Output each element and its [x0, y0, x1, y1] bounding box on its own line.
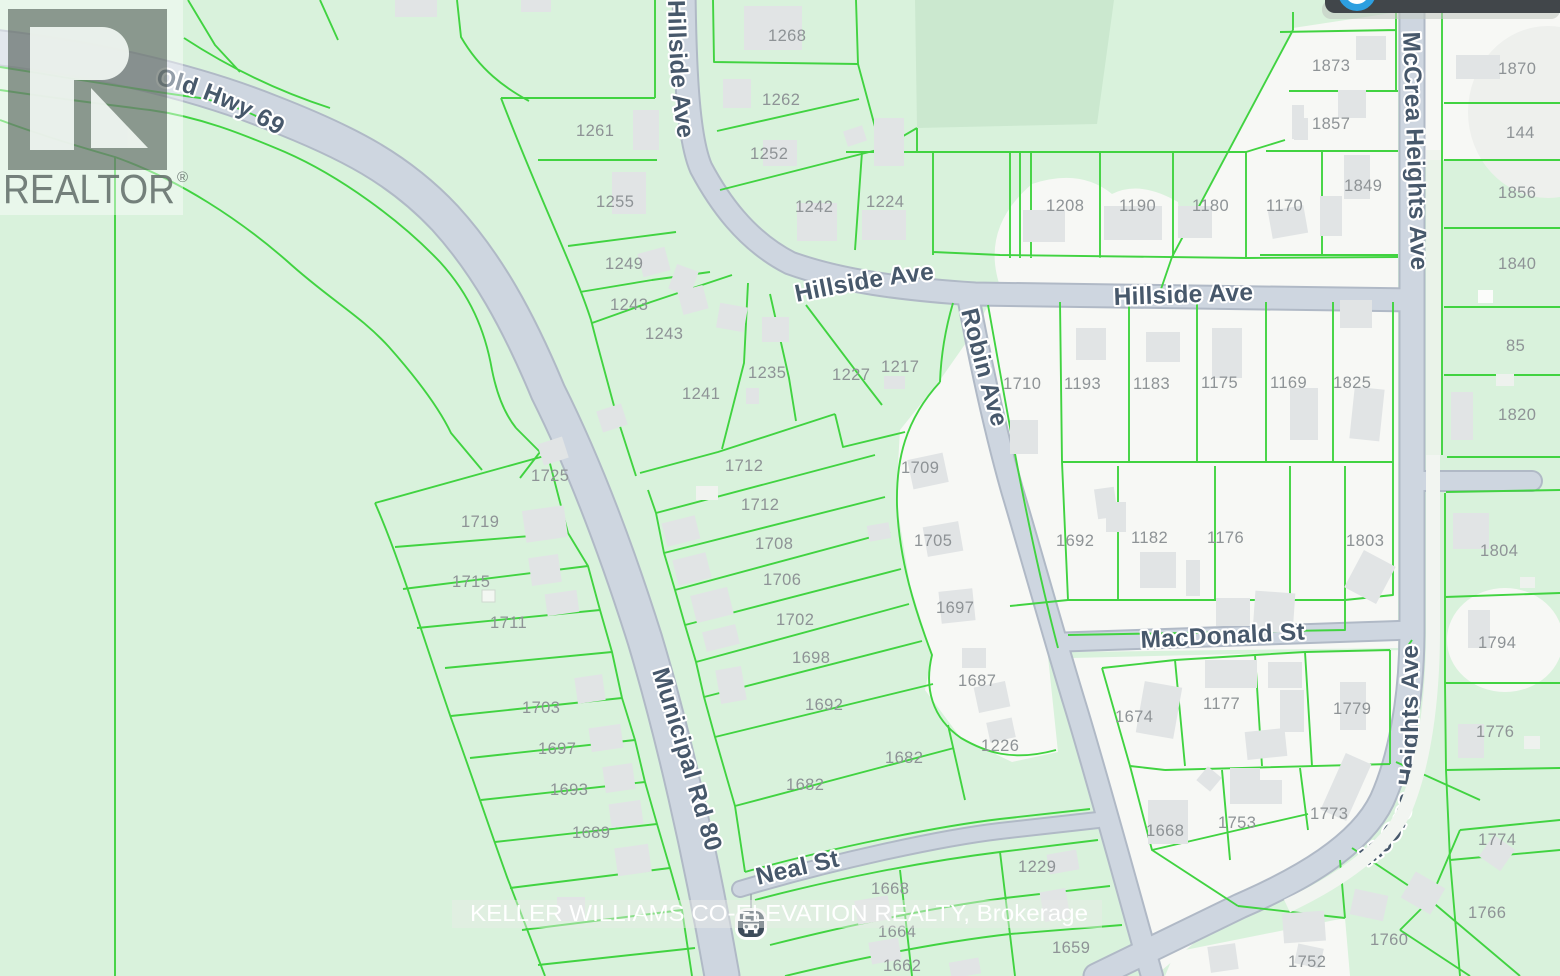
svg-text:1668: 1668	[1146, 822, 1184, 840]
svg-text:1252: 1252	[750, 145, 788, 163]
svg-text:1182: 1182	[1131, 529, 1168, 547]
svg-text:1176: 1176	[1207, 529, 1244, 547]
svg-text:1776: 1776	[1476, 723, 1514, 741]
svg-text:1856: 1856	[1498, 184, 1536, 202]
svg-text:1773: 1773	[1310, 805, 1348, 823]
svg-text:1710: 1710	[1003, 375, 1041, 393]
svg-text:144: 144	[1506, 124, 1535, 142]
svg-text:1692: 1692	[1056, 532, 1094, 550]
svg-text:1702: 1702	[776, 611, 814, 629]
svg-text:1708: 1708	[755, 535, 793, 553]
svg-text:REALTOR: REALTOR	[3, 166, 175, 212]
svg-text:1242: 1242	[795, 198, 833, 216]
svg-text:1692: 1692	[805, 696, 843, 714]
svg-text:1857: 1857	[1312, 115, 1350, 133]
svg-text:1227: 1227	[832, 366, 870, 384]
svg-text:1693: 1693	[550, 781, 588, 799]
svg-text:1262: 1262	[762, 91, 800, 109]
svg-text:1712: 1712	[725, 457, 763, 475]
svg-text:1849: 1849	[1344, 177, 1382, 195]
svg-text:1703: 1703	[522, 699, 560, 717]
svg-text:1820: 1820	[1498, 406, 1536, 424]
svg-text:1752: 1752	[1288, 953, 1326, 971]
svg-text:1243: 1243	[645, 325, 683, 343]
svg-text:1760: 1760	[1370, 931, 1408, 949]
svg-text:1774: 1774	[1478, 831, 1516, 849]
svg-text:1840: 1840	[1498, 255, 1536, 273]
svg-text:1180: 1180	[1192, 197, 1229, 215]
svg-text:1697: 1697	[538, 740, 576, 758]
svg-text:1226: 1226	[981, 737, 1019, 755]
svg-text:1709: 1709	[901, 459, 939, 477]
svg-text:Hillside Ave: Hillside Ave	[1113, 279, 1253, 311]
svg-text:1803: 1803	[1346, 532, 1384, 550]
svg-text:1659: 1659	[1052, 939, 1090, 957]
svg-text:1169: 1169	[1270, 374, 1307, 392]
svg-text:1779: 1779	[1333, 700, 1371, 718]
svg-text:KELLER WILLIAMS CO-ELEVATION R: KELLER WILLIAMS CO-ELEVATION REALTY, Bro…	[470, 900, 1088, 926]
svg-text:1229: 1229	[1018, 858, 1056, 876]
svg-text:1698: 1698	[792, 649, 830, 667]
svg-text:1825: 1825	[1333, 374, 1371, 392]
svg-text:1719: 1719	[461, 513, 499, 531]
svg-text:1870: 1870	[1498, 60, 1536, 78]
svg-text:1804: 1804	[1480, 542, 1518, 560]
svg-text:1794: 1794	[1478, 634, 1516, 652]
svg-text:1268: 1268	[768, 27, 806, 45]
svg-text:1255: 1255	[596, 193, 634, 211]
svg-text:1183: 1183	[1133, 375, 1170, 393]
svg-text:1177: 1177	[1203, 695, 1240, 713]
svg-text:1261: 1261	[576, 122, 614, 140]
svg-text:1235: 1235	[748, 364, 786, 382]
svg-text:1682: 1682	[885, 749, 923, 767]
svg-text:1725: 1725	[531, 467, 569, 485]
svg-text:1243: 1243	[610, 296, 648, 314]
svg-text:1697: 1697	[936, 599, 974, 617]
svg-text:®: ®	[177, 169, 188, 186]
svg-text:1712: 1712	[741, 496, 779, 514]
svg-text:1241: 1241	[682, 385, 720, 403]
svg-text:1715: 1715	[452, 573, 490, 591]
svg-text:1193: 1193	[1064, 375, 1101, 393]
svg-text:1190: 1190	[1119, 197, 1156, 215]
svg-text:1170: 1170	[1266, 197, 1303, 215]
svg-text:1706: 1706	[763, 571, 801, 589]
svg-text:1689: 1689	[572, 824, 610, 842]
svg-text:1175: 1175	[1201, 374, 1238, 392]
svg-text:1224: 1224	[866, 193, 904, 211]
svg-text:1208: 1208	[1046, 197, 1084, 215]
svg-text:1705: 1705	[914, 532, 952, 550]
svg-text:1668: 1668	[871, 880, 909, 898]
svg-text:1217: 1217	[881, 358, 919, 376]
svg-text:1687: 1687	[958, 672, 996, 690]
svg-text:1766: 1766	[1468, 904, 1506, 922]
svg-text:1249: 1249	[605, 255, 643, 273]
svg-text:85: 85	[1506, 337, 1525, 355]
svg-text:1873: 1873	[1312, 57, 1350, 75]
svg-text:1753: 1753	[1218, 814, 1256, 832]
svg-text:1662: 1662	[883, 957, 921, 975]
svg-text:1682: 1682	[786, 776, 824, 794]
svg-text:1674: 1674	[1115, 708, 1153, 726]
svg-text:1711: 1711	[490, 614, 527, 632]
